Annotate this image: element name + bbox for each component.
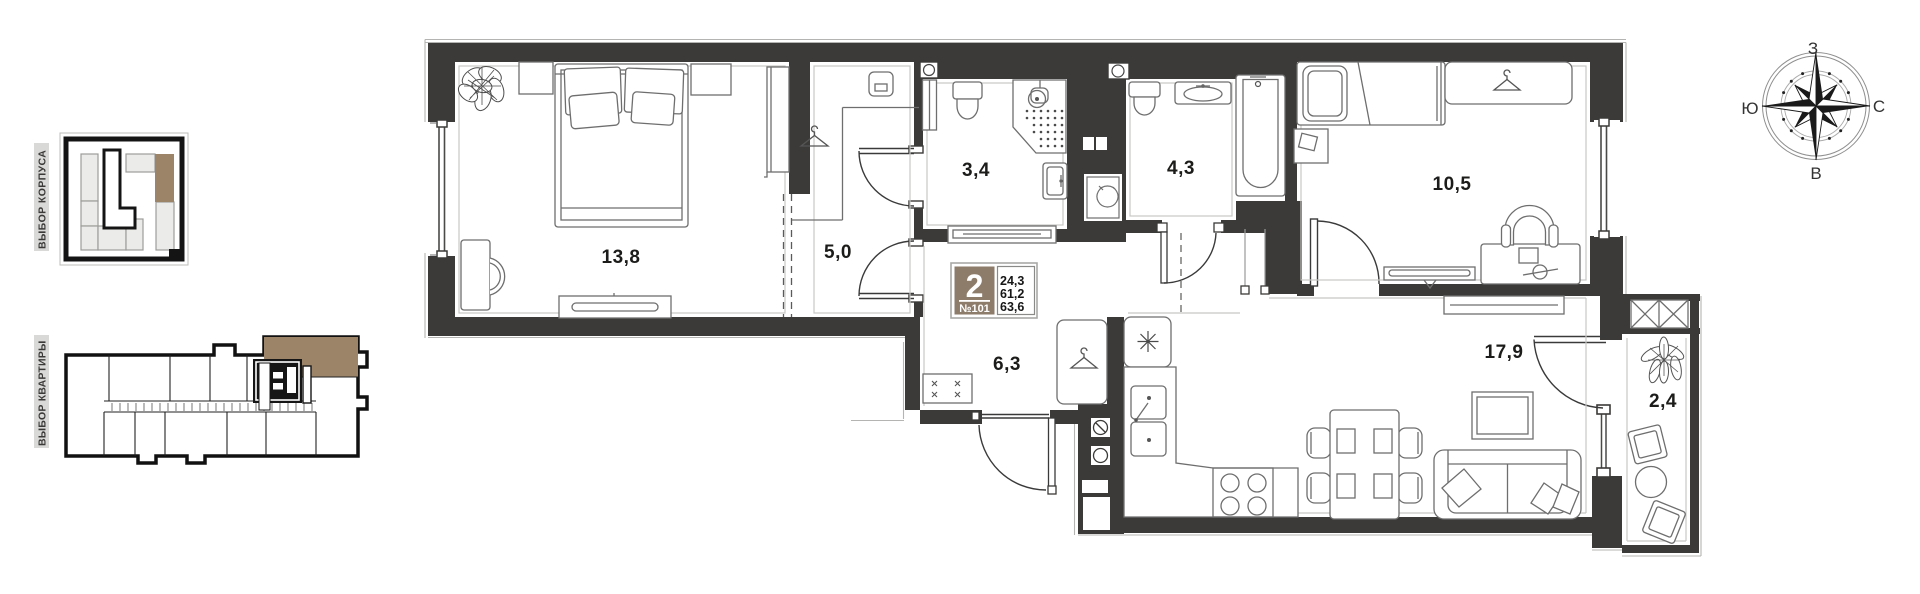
svg-text:4,3: 4,3 [1167,158,1195,179]
svg-text:ВЫБОР КОРПУСА: ВЫБОР КОРПУСА [37,150,49,249]
svg-text:Ю: Ю [1741,99,1758,118]
svg-text:№101: №101 [959,303,990,315]
svg-text:З: З [1808,39,1818,58]
svg-text:В: В [1810,164,1821,183]
svg-text:13,8: 13,8 [602,247,641,268]
svg-text:ВЫБОР КВАРТИРЫ: ВЫБОР КВАРТИРЫ [37,341,49,446]
svg-text:2: 2 [966,268,984,304]
svg-text:61,2: 61,2 [1000,287,1024,301]
svg-text:63,6: 63,6 [1000,300,1024,314]
svg-text:10,5: 10,5 [1433,174,1472,195]
svg-text:С: С [1873,97,1885,116]
svg-text:3,4: 3,4 [962,160,990,181]
svg-text:6,3: 6,3 [993,354,1021,375]
svg-text:24,3: 24,3 [1000,274,1024,288]
svg-text:2,4: 2,4 [1649,391,1677,412]
svg-text:5,0: 5,0 [824,242,852,263]
svg-text:17,9: 17,9 [1485,342,1524,363]
